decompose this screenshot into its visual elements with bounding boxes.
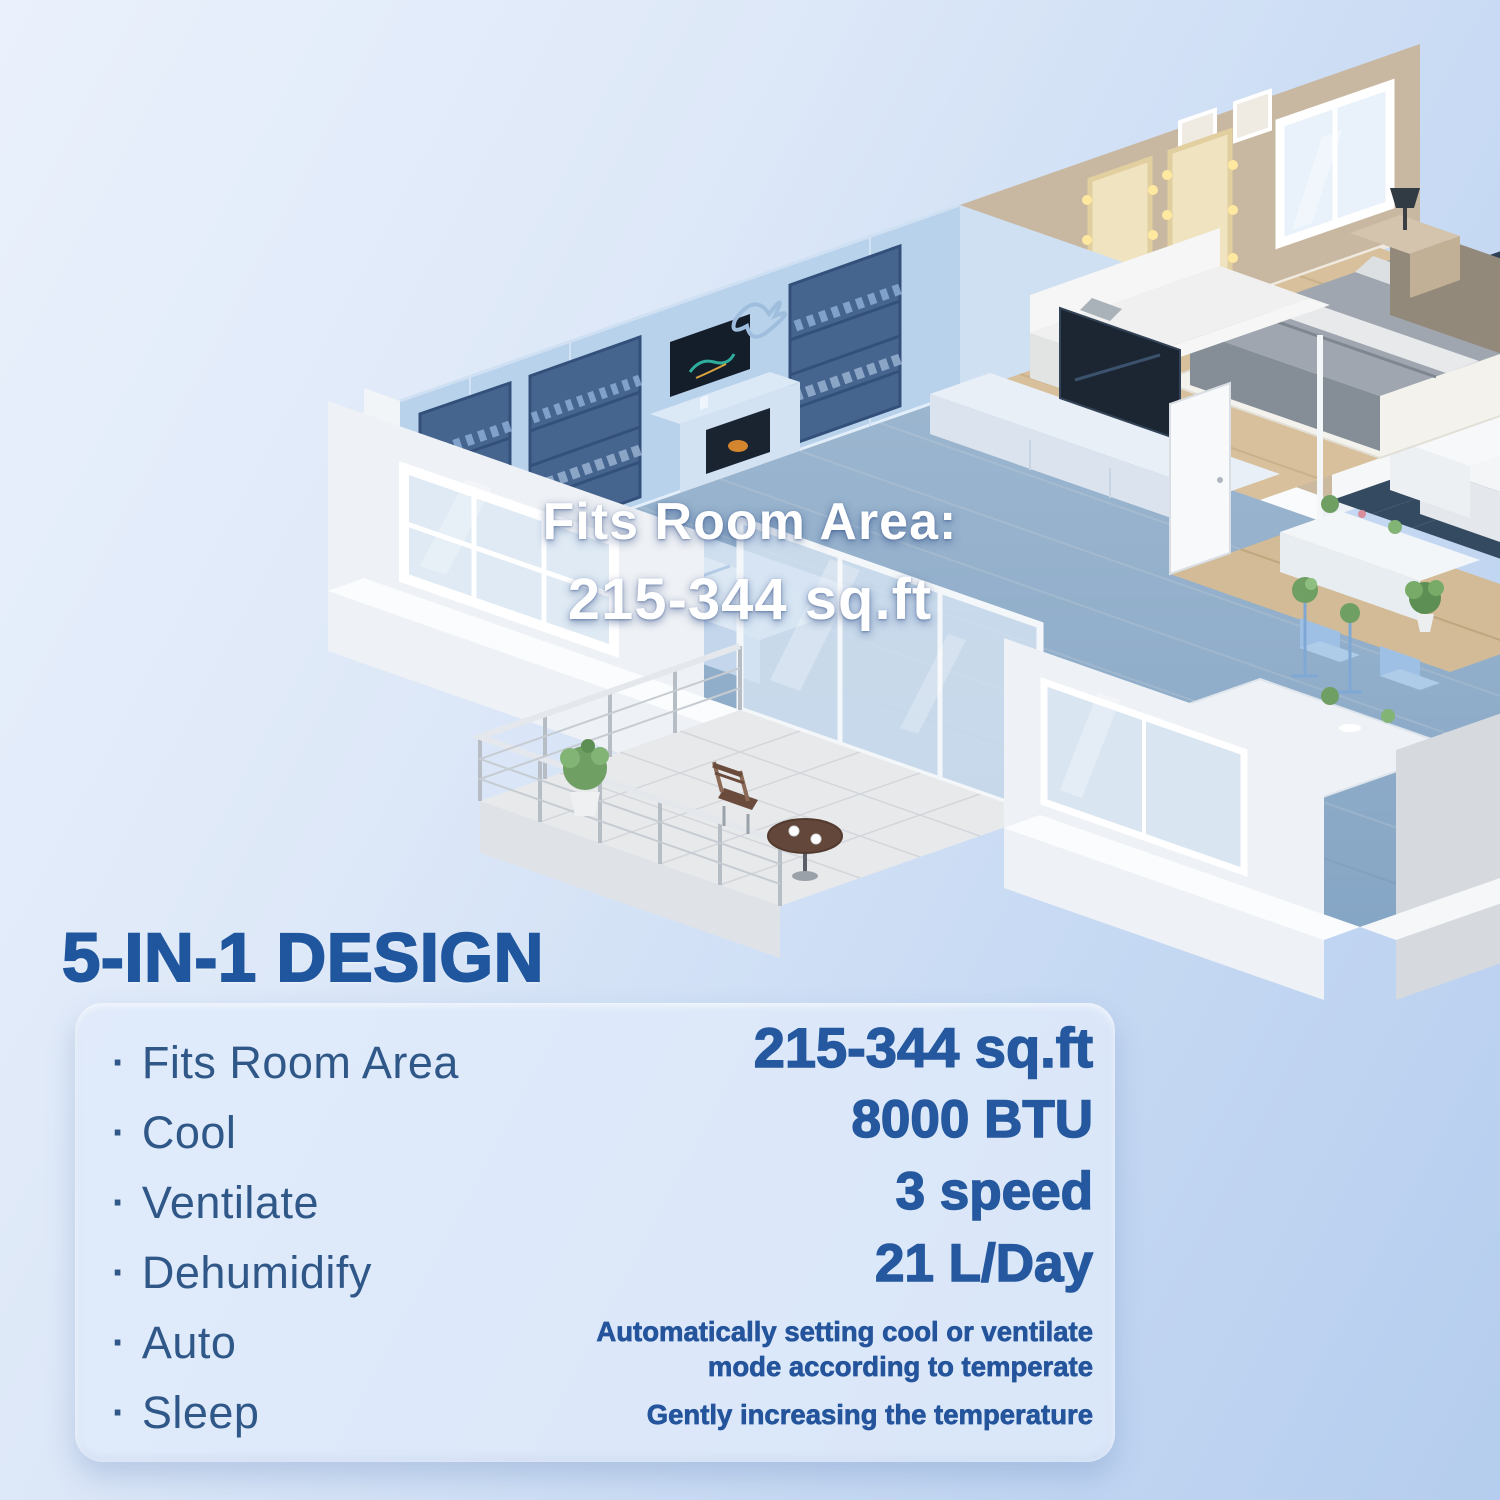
feature-item-label: Fits Room Area <box>142 1037 459 1089</box>
bullet-icon: · <box>112 1251 126 1296</box>
spec-list: 215-344 sq.ft 8000 BTU 3 speed 21 L/Day <box>754 1012 1093 1300</box>
feature-item: · Auto <box>112 1308 459 1378</box>
floor-area-label-title: Fits Room Area: <box>430 492 1070 552</box>
spec-btu: 8000 BTU <box>754 1084 1093 1156</box>
bullet-icon: · <box>112 1181 126 1226</box>
feature-item: · Cool <box>112 1098 459 1168</box>
bullet-icon: · <box>112 1041 126 1086</box>
floor-area-label-value: 215-344 sq.ft <box>430 566 1070 633</box>
bullet-icon: · <box>112 1391 126 1436</box>
page: Fits Room Area: 215-344 sq.ft 5-IN-1 DES… <box>0 0 1500 1500</box>
spec-speed: 3 speed <box>754 1156 1093 1228</box>
feature-item: · Ventilate <box>112 1168 459 1238</box>
feature-item: · Dehumidify <box>112 1238 459 1308</box>
feature-item: · Fits Room Area <box>112 1028 459 1098</box>
feature-item-label: Sleep <box>142 1387 260 1439</box>
potted-plant <box>1388 520 1402 534</box>
note-auto-mode: Automatically setting cool or ventilate … <box>573 1314 1093 1384</box>
note-sleep-mode: Gently increasing the temperature <box>573 1397 1093 1432</box>
spec-room-area: 215-344 sq.ft <box>754 1012 1093 1084</box>
feature-item-label: Cool <box>142 1107 237 1159</box>
potted-plant <box>1321 495 1339 513</box>
feature-list: · Fits Room Area · Cool · Ventilate · De… <box>112 1028 459 1448</box>
bullet-icon: · <box>112 1321 126 1366</box>
spec-notes: Automatically setting cool or ventilate … <box>573 1314 1093 1432</box>
feature-item-label: Dehumidify <box>142 1247 372 1299</box>
page-title: 5-IN-1 DESIGN <box>62 918 544 997</box>
spec-dehumidify-rate: 21 L/Day <box>754 1228 1093 1300</box>
bullet-icon: · <box>112 1111 126 1156</box>
feature-item-label: Auto <box>142 1317 237 1369</box>
feature-item-label: Ventilate <box>142 1177 319 1229</box>
floor-area-label: Fits Room Area: 215-344 sq.ft <box>430 492 1070 633</box>
feature-item: · Sleep <box>112 1378 459 1448</box>
